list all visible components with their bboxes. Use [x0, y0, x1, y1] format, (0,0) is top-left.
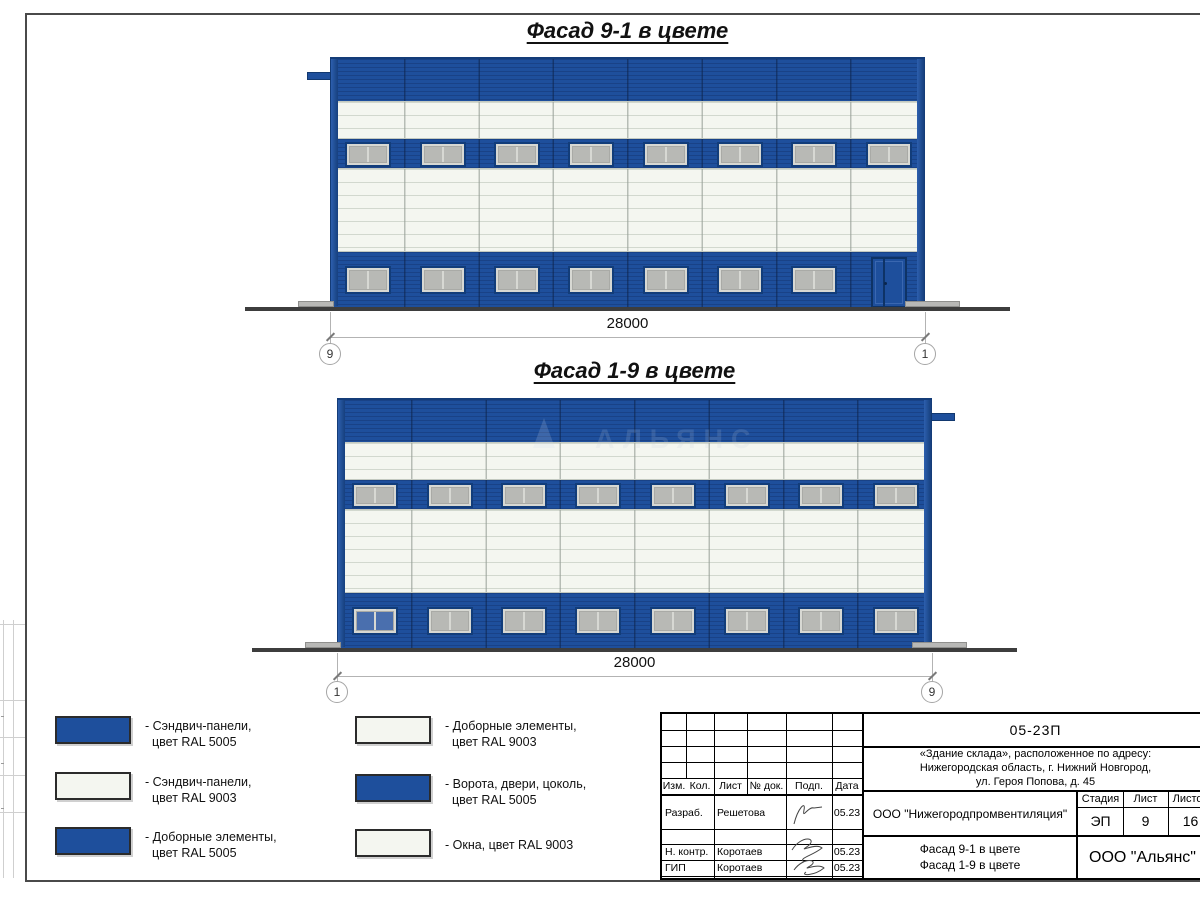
building-elevation [330, 57, 925, 307]
window-panes [877, 487, 915, 504]
tb-sheet-label: Лист [1123, 790, 1168, 807]
window-panes [349, 146, 387, 163]
tb-organization: ООО "Альянс" [1078, 837, 1200, 878]
tb-drawing-title: Фасад 9-1 в цвете Фасад 1-9 в цвете [864, 837, 1076, 878]
window [568, 266, 614, 294]
window-panes [505, 487, 543, 504]
ground-line [252, 648, 1017, 652]
window [798, 607, 844, 635]
window-panes [572, 270, 610, 290]
tb-stage-value: ЭП [1078, 807, 1123, 835]
window [575, 483, 621, 508]
tb-date: 05.23 [832, 860, 862, 876]
tb-name: Коротаев [714, 860, 786, 876]
window [643, 142, 689, 167]
window [427, 607, 473, 635]
window [724, 607, 770, 635]
window [501, 483, 547, 508]
legend-swatch-blue [55, 716, 131, 744]
window-panes [579, 487, 617, 504]
tb-sheets-value: 16 [1168, 807, 1200, 835]
tb-doc-number: 05-23П [864, 714, 1200, 746]
window [501, 607, 547, 635]
window-blue-infill [352, 607, 398, 635]
window-panes [795, 146, 833, 163]
legend-swatch-white [355, 716, 431, 744]
dimension-value: 28000 [610, 654, 660, 671]
door-handle [884, 282, 887, 285]
tb-date: 05.23 [832, 796, 862, 829]
window [798, 483, 844, 508]
title-block: Изм. Кол. Лист № док. Подп. Дата Разраб.… [660, 712, 1200, 880]
dim-extension-line [925, 312, 926, 345]
window-panes [505, 611, 543, 631]
window [494, 266, 540, 294]
dim-extension-line [330, 312, 331, 345]
tb-col-doc: № док. [747, 778, 786, 794]
tb-role: Разраб. [662, 796, 714, 829]
tb-contractor: ООО "Нижегородпромвентиляция" [864, 792, 1076, 835]
window [420, 142, 466, 167]
window [717, 142, 763, 167]
legend-swatch-blue [55, 827, 131, 855]
dimension-line [337, 676, 932, 677]
entrance-door [871, 257, 907, 308]
window [650, 607, 696, 635]
window-panes [870, 146, 908, 163]
window [427, 483, 473, 508]
window-panes [877, 611, 915, 631]
window-panes [356, 611, 394, 631]
tb-name: Коротаев [714, 844, 786, 860]
window [575, 607, 621, 635]
window [345, 142, 391, 167]
dim-extension-line [337, 653, 338, 683]
legend-label: - Доборные элементы,цвет RAL 5005 [145, 829, 277, 862]
window-panes [728, 611, 766, 631]
window-panes [647, 146, 685, 163]
window-panes [654, 487, 692, 504]
axis-marker: 9 [921, 681, 943, 703]
tb-object-address: «Здание склада», расположенное по адресу… [864, 748, 1200, 790]
window-panes [795, 270, 833, 290]
corner-trim [917, 59, 924, 306]
window [717, 266, 763, 294]
building-elevation: АЛЬЯНС [337, 398, 932, 648]
window-panes [424, 146, 462, 163]
legend-label: - Сэндвич-панели,цвет RAL 5005 [145, 718, 251, 751]
window [873, 483, 919, 508]
window-panes [356, 487, 394, 504]
dimension-line [330, 337, 925, 338]
tb-role: ГИП [662, 860, 714, 876]
axis-marker: 1 [914, 343, 936, 365]
axis-marker: 1 [326, 681, 348, 703]
window-panes [424, 270, 462, 290]
dim-extension-line [932, 653, 933, 683]
tb-col-data: Дата [832, 778, 862, 794]
window-panes [431, 487, 469, 504]
window-panes [721, 146, 759, 163]
facade-title: Фасад 9-1 в цвете [527, 18, 729, 44]
window [352, 483, 398, 508]
window-panes [572, 146, 610, 163]
legend-swatch-white [55, 772, 131, 800]
tb-sheet-value: 9 [1123, 807, 1168, 835]
sandwich-panel-band-ral9003 [331, 168, 924, 252]
legend-swatch-white [355, 829, 431, 857]
legend-label: - Сэндвич-панели,цвет RAL 9003 [145, 774, 251, 807]
window-panes [721, 270, 759, 290]
sandwich-panel-band-ral5005 [331, 59, 924, 101]
legend-swatch-blue [355, 774, 431, 802]
tb-sheets-label: Листов [1168, 790, 1200, 807]
sandwich-panel-band-ral9003 [331, 101, 924, 139]
window [873, 607, 919, 635]
window-panes [431, 611, 469, 631]
tb-col-izm: Изм. [662, 778, 686, 794]
window-panes [498, 270, 536, 290]
legend-label: - Доборные элементы,цвет RAL 9003 [445, 718, 577, 751]
window [420, 266, 466, 294]
window [866, 142, 912, 167]
roof-edge-tab [307, 72, 331, 80]
tb-name: Решетова [714, 796, 786, 829]
ground-line [245, 307, 1010, 311]
window-panes [579, 611, 617, 631]
window-panes [802, 487, 840, 504]
corner-trim [338, 400, 345, 647]
window-panes [802, 611, 840, 631]
tb-col-kol: Кол. [686, 778, 714, 794]
window [568, 142, 614, 167]
tb-role: Н. контр. [662, 844, 714, 860]
window [791, 266, 837, 294]
tb-date: 05.23 [832, 844, 862, 860]
corner-trim [331, 59, 338, 306]
window [494, 142, 540, 167]
corner-trim [924, 400, 931, 647]
roof-edge-tab [931, 413, 955, 421]
axis-marker: 9 [319, 343, 341, 365]
door-frame [875, 261, 903, 304]
facade-title: Фасад 1-9 в цвете [534, 358, 736, 384]
window [650, 483, 696, 508]
sandwich-panel-band-ral9003 [338, 509, 931, 593]
window-panes [647, 270, 685, 290]
tb-col-list: Лист [714, 778, 747, 794]
window [643, 266, 689, 294]
window [345, 266, 391, 294]
dimension-value: 28000 [603, 315, 653, 332]
window-panes [728, 487, 766, 504]
window-panes [349, 270, 387, 290]
tb-stage-label: Стадия [1078, 790, 1123, 807]
window-panes [654, 611, 692, 631]
sandwich-panel-band-ral9003 [338, 442, 931, 480]
legend-label: - Окна, цвет RAL 9003 [445, 837, 573, 853]
window-panes [498, 146, 536, 163]
legend-label: - Ворота, двери, цоколь,цвет RAL 5005 [445, 776, 586, 809]
window [724, 483, 770, 508]
window [791, 142, 837, 167]
tb-col-podp: Подп. [786, 778, 832, 794]
sandwich-panel-band-ral5005 [338, 400, 931, 442]
